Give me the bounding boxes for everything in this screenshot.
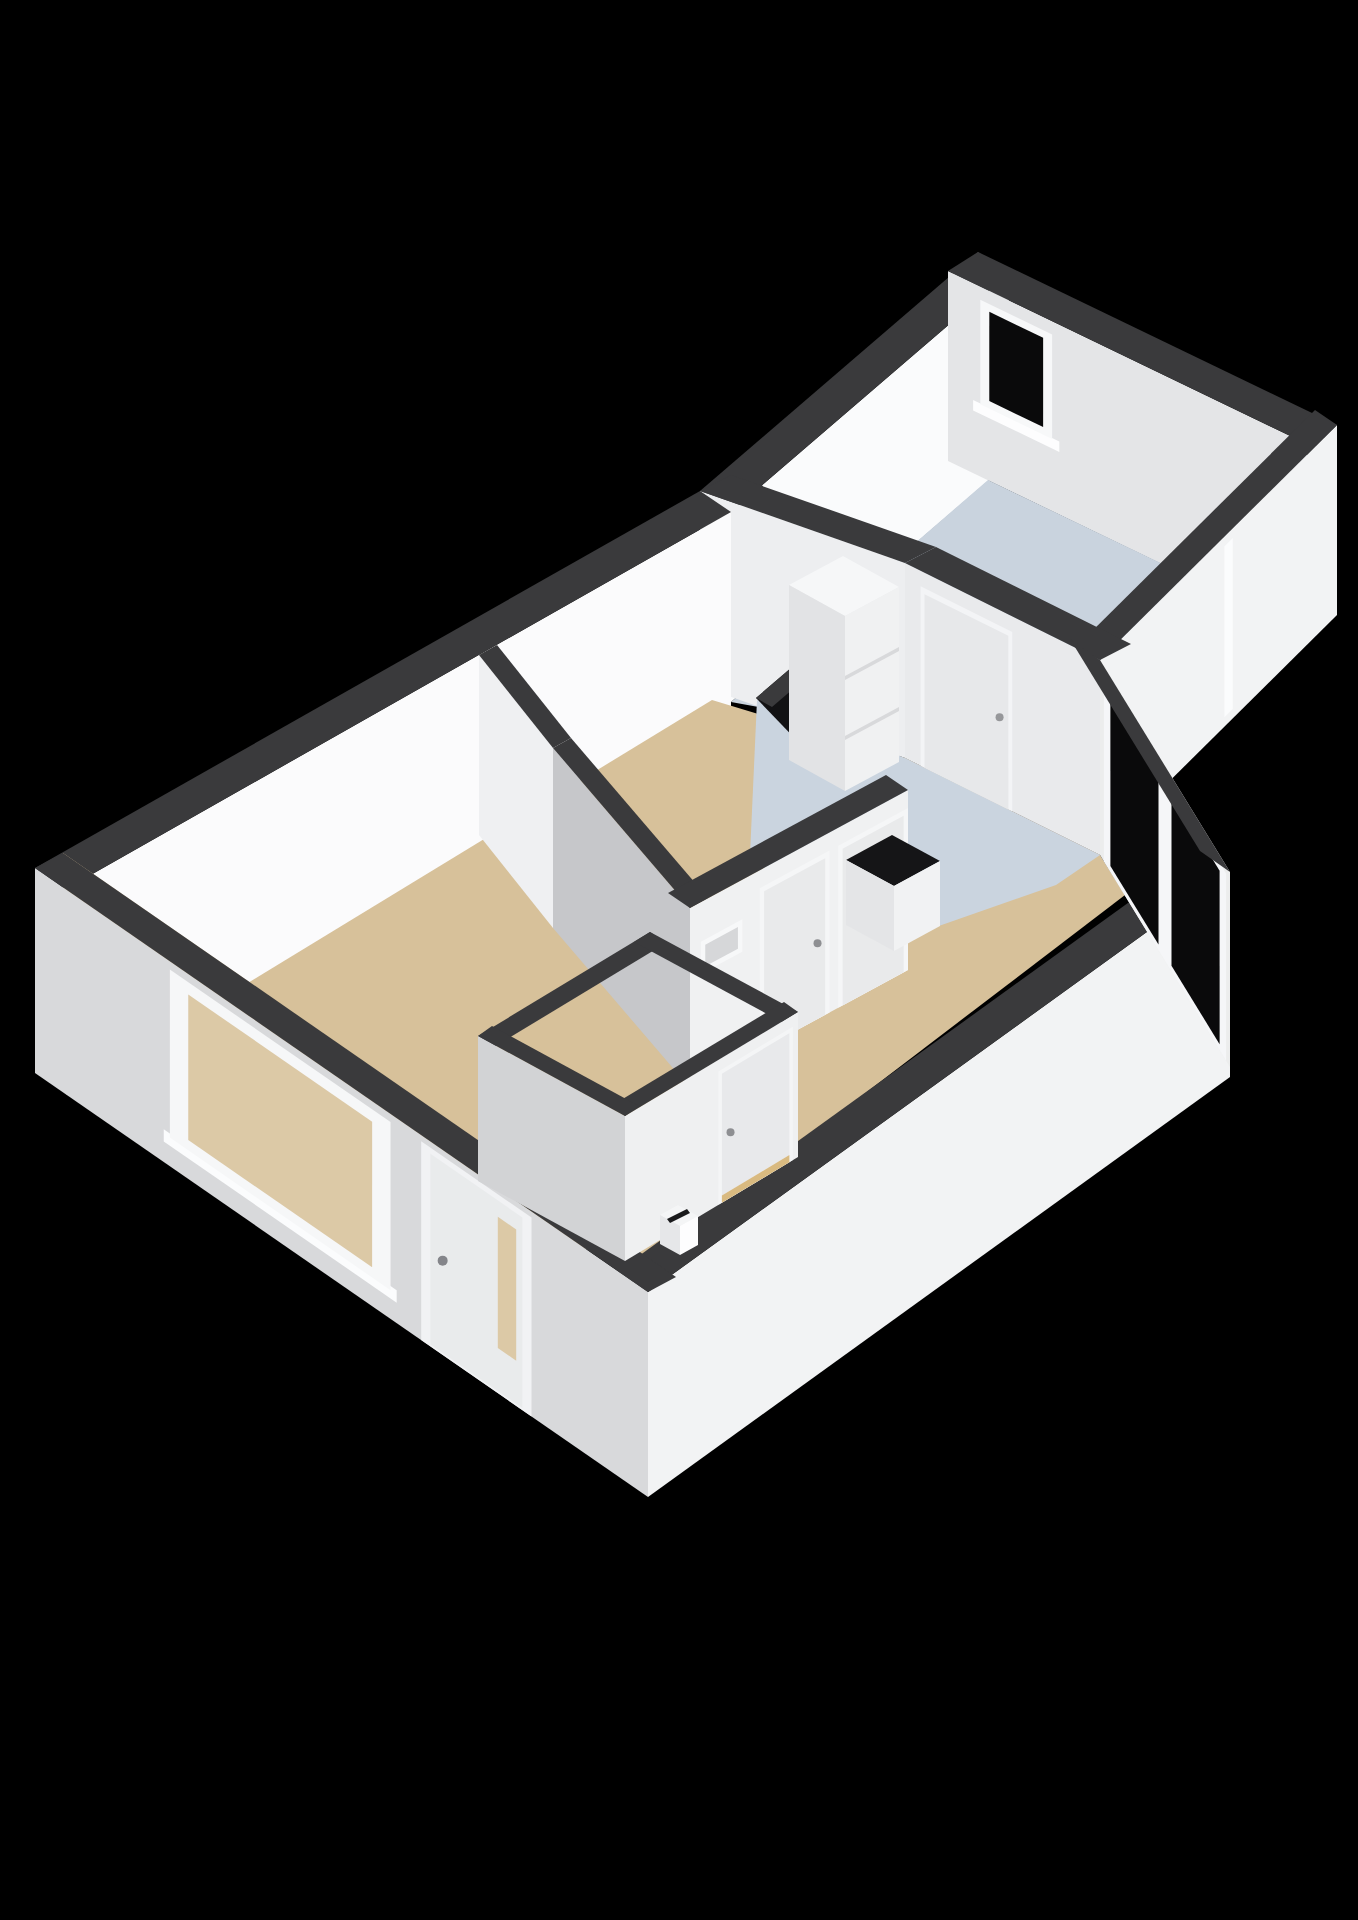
bedroom-door-handle: [996, 713, 1004, 721]
front-door-glass: [498, 1217, 516, 1361]
floorplan-3d-render: [0, 0, 1358, 1920]
kitchen-cabinet-side: [789, 585, 845, 791]
wc-door-handle: [814, 939, 822, 947]
front-door-handle: [438, 1256, 448, 1266]
floorplan-3d-stage: [0, 0, 1358, 1920]
bedroom-exterior-door-seam: [1224, 538, 1232, 717]
kitchen-cabinet-front: [845, 587, 899, 791]
hall-door-handle: [727, 1128, 735, 1136]
